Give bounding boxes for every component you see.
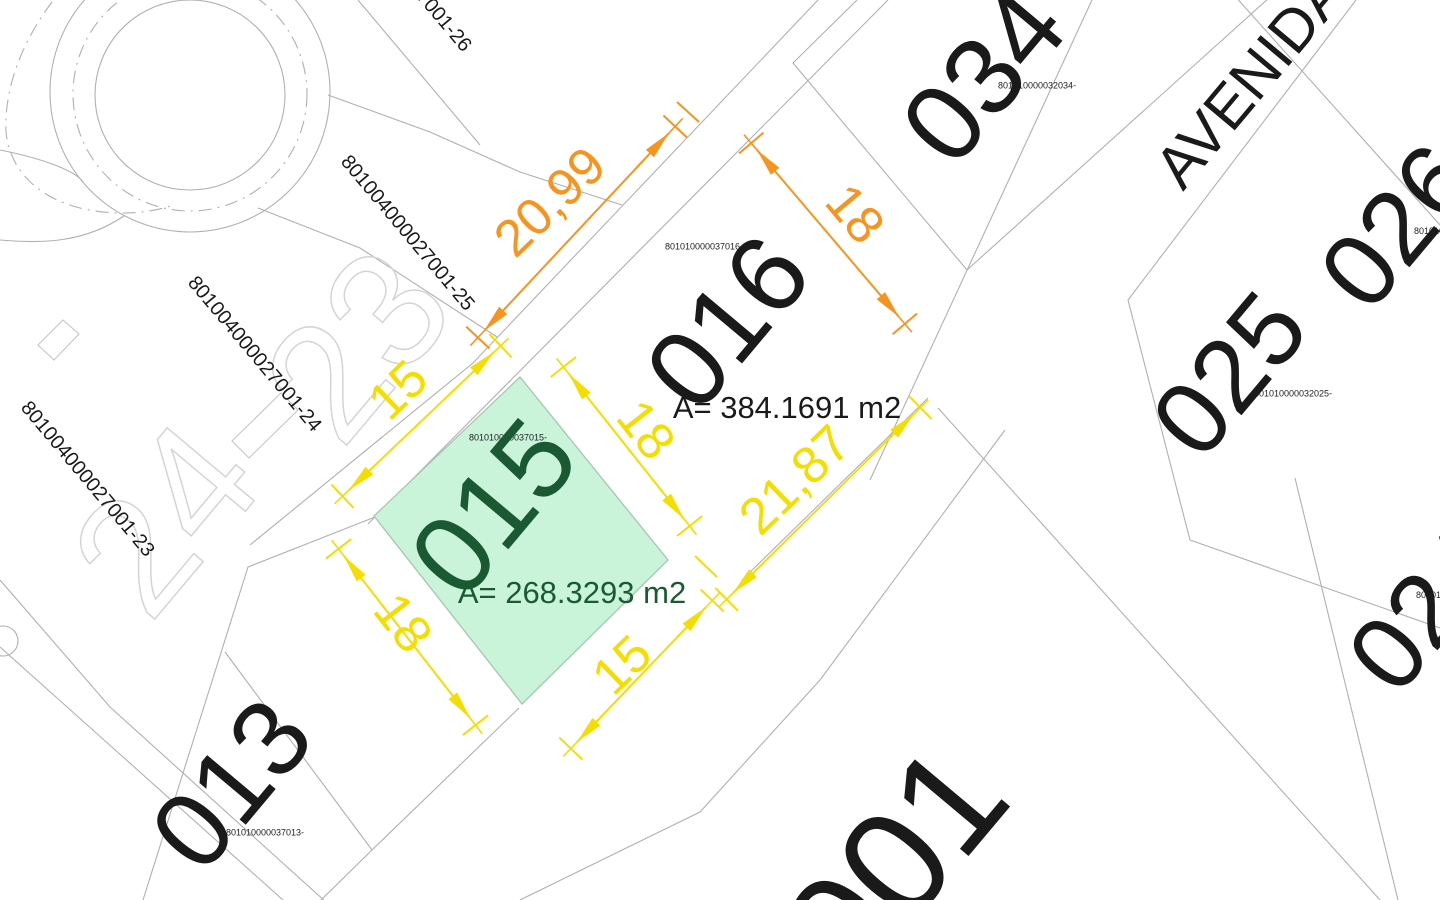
- parcel-number-034[interactable]: 034: [878, 0, 1090, 186]
- dimension-arrowhead: [448, 693, 470, 718]
- street-name-label: AVENIDA: [1142, 0, 1360, 200]
- parcel-boundary-line: [318, 708, 519, 900]
- dimension-arrowhead: [662, 494, 684, 519]
- parcel-number-001[interactable]: 001: [750, 713, 1040, 900]
- parcel-number-025[interactable]: 025: [1130, 271, 1330, 478]
- ghost-parcel-number: 24: [35, 389, 294, 648]
- parcel-boundary-line: [358, 0, 480, 145]
- parcel-number-026[interactable]: 026: [1298, 123, 1440, 330]
- roundabout-edge: [50, 0, 330, 232]
- parcel-boundary-line: [1295, 478, 1398, 900]
- dimension-tick: [677, 102, 699, 122]
- dimension-tick: [463, 715, 488, 735]
- roundabout-edge: [0, 626, 18, 656]
- dimension-label: 15: [581, 624, 663, 706]
- dimension-arrowhead: [569, 374, 591, 399]
- dimension-label: 18: [814, 173, 896, 255]
- dimension-tick: [893, 313, 917, 334]
- roundabout-edge: [95, 0, 285, 190]
- neighbor-parcel-id: 801004000027001-26: [333, 0, 476, 56]
- road-edge: [0, 216, 124, 242]
- dimension-tick: [677, 516, 702, 536]
- parcel-number-013[interactable]: 013: [127, 676, 336, 892]
- dimension-arrowhead: [344, 556, 366, 581]
- roundabout-centerline: [73, 0, 307, 211]
- cadastral-map-canvas: 2324801010000037015-801010000037016-8010…: [0, 0, 1440, 900]
- parcel-area-label: A= 384.1691 m2: [673, 390, 901, 425]
- building-footprint: [38, 320, 79, 360]
- dimension-tick: [551, 357, 576, 377]
- dimension-tick: [739, 133, 763, 154]
- road-centerline: [6, 2, 174, 213]
- parcel-number-024[interactable]: 024: [1326, 506, 1440, 713]
- dimension-tick: [326, 539, 351, 559]
- cadastral-map-view: 2324801010000037015-801010000037016-8010…: [0, 0, 1440, 900]
- dimension-tick: [695, 556, 717, 577]
- dimension-label: 21,87: [728, 414, 862, 546]
- dimension-label: 20,99: [483, 136, 617, 268]
- ghost-parcel-number: 23: [227, 215, 486, 474]
- parcel-area-label: A= 268.3293 m2: [458, 575, 686, 610]
